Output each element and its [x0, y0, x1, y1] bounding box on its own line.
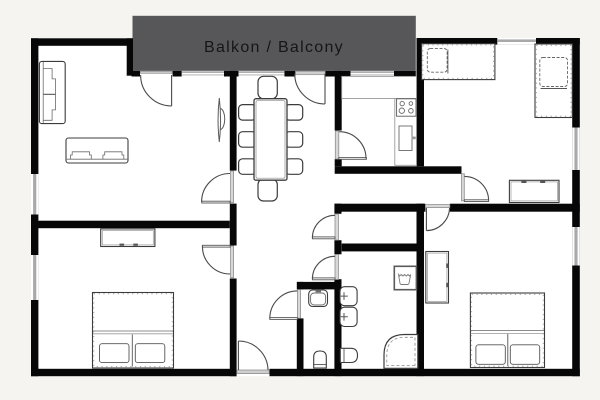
svg-text:Balkon / Balcony: Balkon / Balcony [204, 39, 344, 56]
